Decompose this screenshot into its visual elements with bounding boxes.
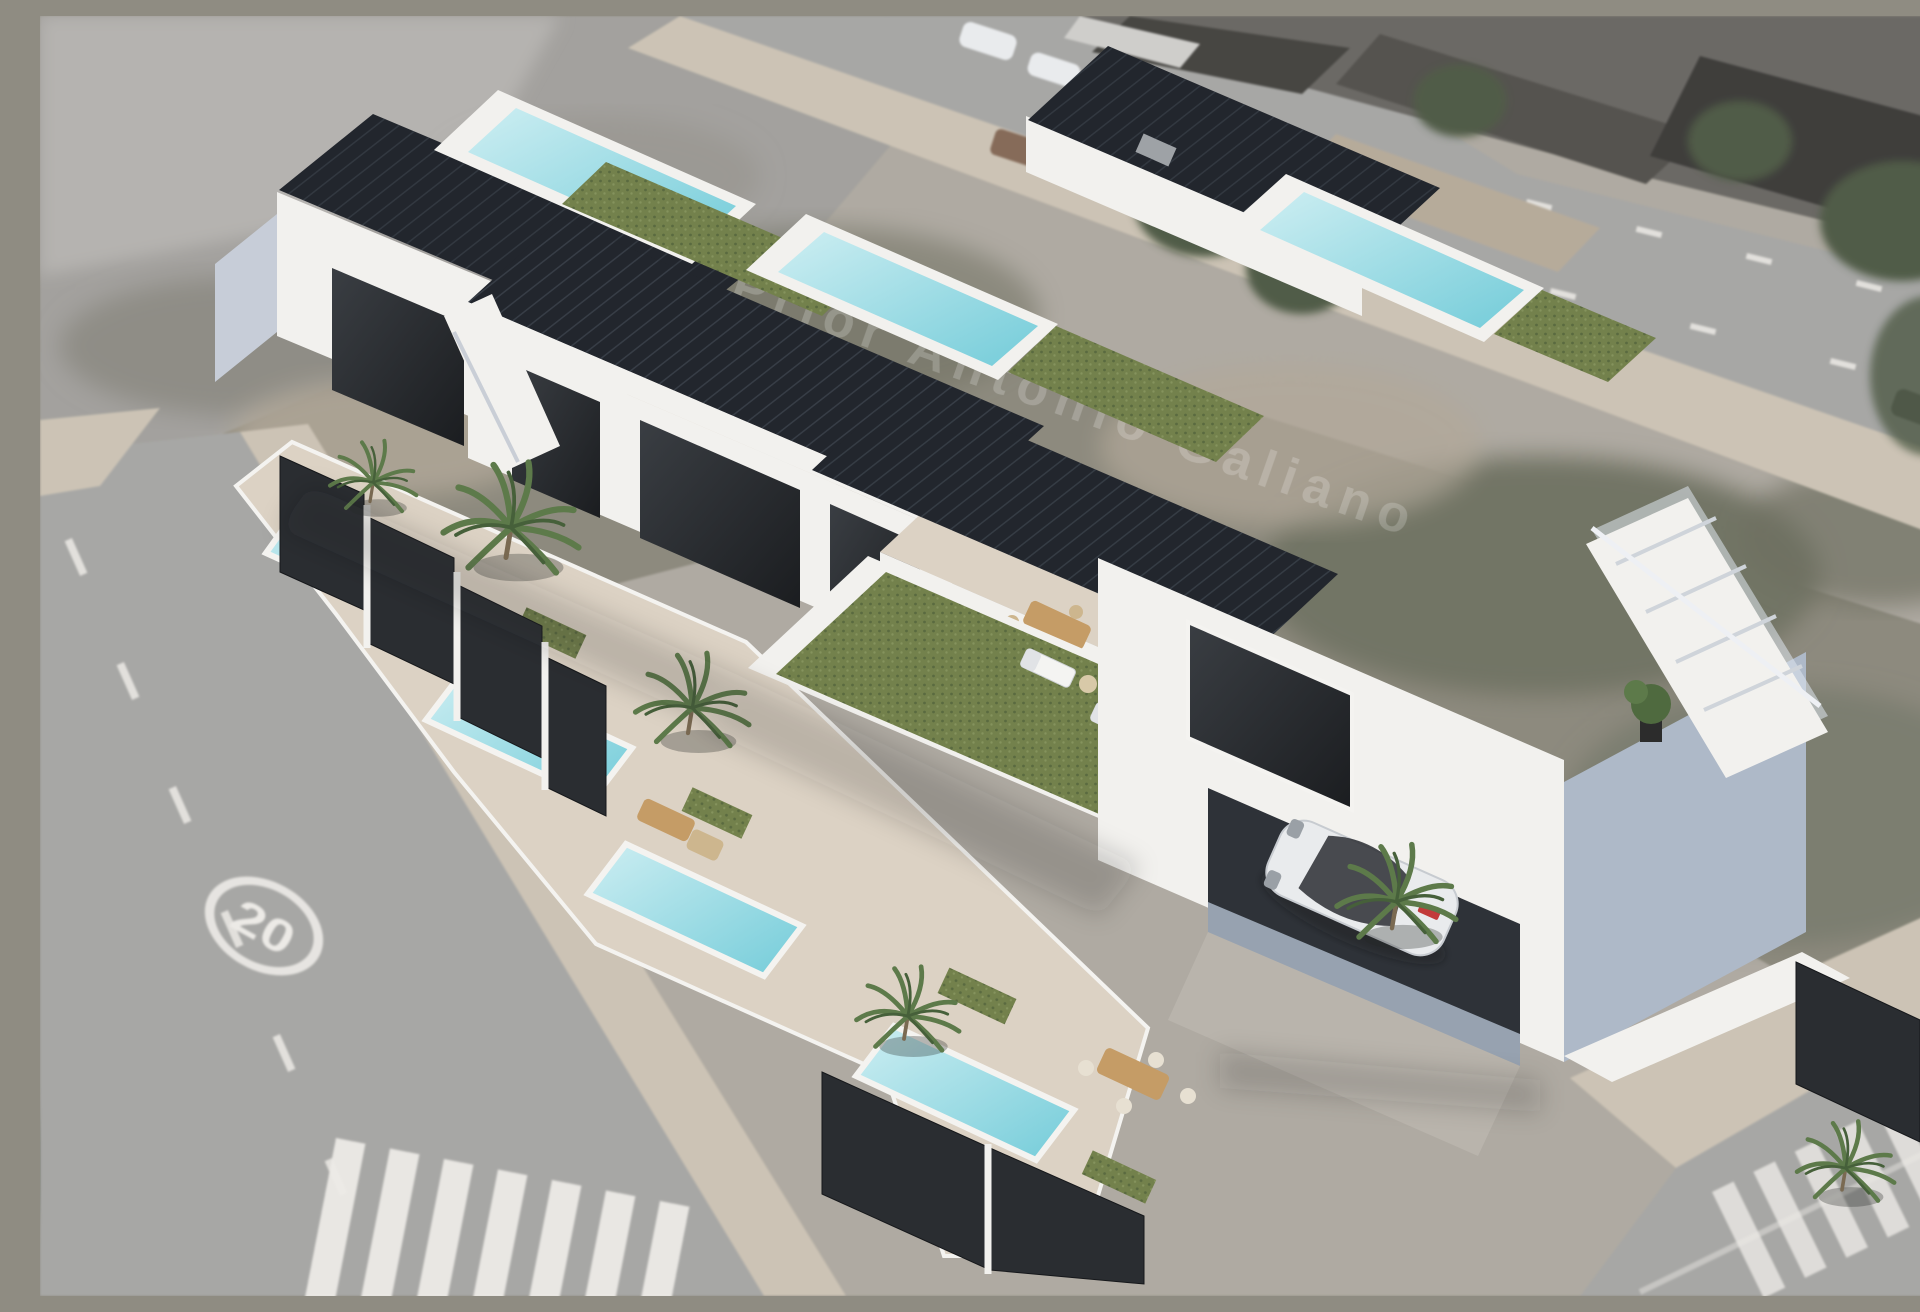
scene-canvas: 20 <box>40 16 1920 1296</box>
lounger-side-table <box>1079 675 1097 693</box>
aerial-architectural-render: 20 <box>40 16 1920 1296</box>
fence-panel <box>548 658 606 816</box>
